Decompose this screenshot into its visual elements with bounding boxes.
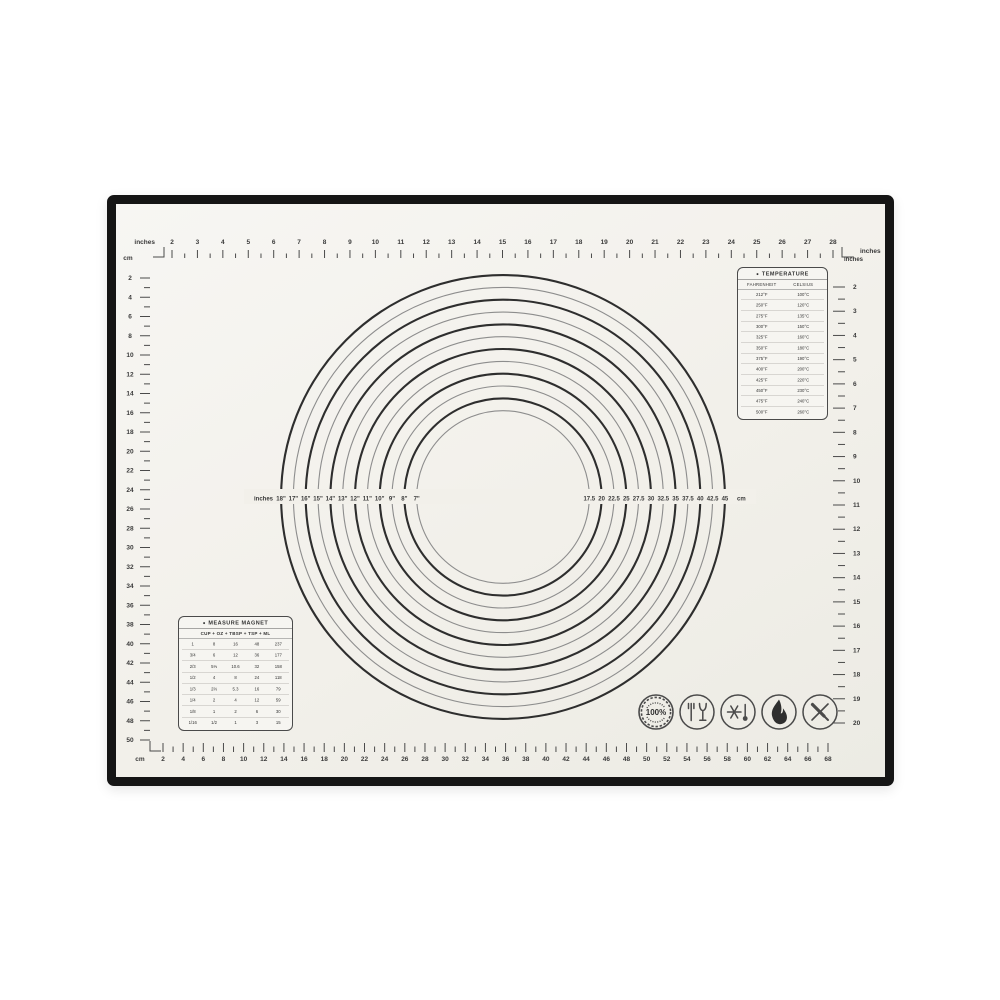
fahrenheit-column-label: FAHRENHEIT	[741, 282, 783, 287]
measure-cell: 15	[268, 720, 289, 725]
ruler-number: 11	[397, 239, 404, 246]
temperature-cell: 135°C	[783, 313, 825, 318]
measure-cell: 3	[246, 720, 267, 725]
ruler-number: 26	[126, 506, 134, 513]
right-ruler-unit: inches	[844, 257, 864, 263]
temperature-table-header: FAHRENHEIT CELSIUS	[738, 280, 827, 290]
measure-row: 1/4241259	[182, 694, 289, 705]
temperature-table-title: ● TEMPERATURE	[738, 268, 827, 280]
ruler-number: 22	[126, 468, 134, 475]
measure-cell: 24	[246, 675, 267, 680]
ruler-number: 19	[601, 239, 609, 246]
ruler-number: 16	[524, 239, 532, 246]
diameter-label: 15"	[313, 497, 323, 503]
ruler-number: 44	[583, 756, 591, 763]
ruler-number: 58	[724, 756, 732, 763]
ruler-number: 10	[240, 756, 248, 763]
cm-diameter-label: 37.5	[682, 497, 694, 503]
ruler-number: 20	[341, 756, 349, 763]
left-ruler-unit: cm	[123, 255, 133, 262]
glass-glyph	[700, 704, 707, 721]
ruler-number: 54	[683, 756, 691, 763]
ruler-number: 6	[853, 381, 857, 388]
measure-cell: 2	[203, 698, 224, 703]
badge-arc-text-bottom	[647, 717, 665, 722]
ruler-number: 6	[201, 756, 205, 763]
ruler-number: 48	[126, 718, 134, 725]
temperature-row: 375°F190°C	[741, 353, 824, 364]
ruler-number: 16	[300, 756, 308, 763]
temperature-cell: 100°C	[783, 292, 825, 297]
ruler-number: 2	[161, 756, 165, 763]
cm-diameter-label: 20	[598, 497, 605, 503]
measure-cell: 177	[268, 653, 289, 658]
ruler-number: 20	[126, 448, 134, 455]
temperature-row: 400°F200°C	[741, 364, 824, 375]
ruler-number: 46	[603, 756, 611, 763]
ruler-number: 12	[260, 756, 268, 763]
ruler-number: 38	[126, 622, 134, 629]
ruler-number: 19	[853, 696, 861, 703]
ruler-number: 17	[550, 239, 558, 246]
measure-row: 1/24824118	[182, 672, 289, 683]
diameter-label: 13"	[338, 497, 348, 503]
temperature-cell: 260°C	[783, 409, 825, 414]
ruler-number: 9	[853, 454, 857, 461]
measure-row: 181648237	[182, 639, 289, 650]
ruler-number: 7	[853, 405, 857, 412]
ruler-number: 13	[448, 239, 456, 246]
temperature-cell: 475°F	[741, 399, 783, 404]
ruler-number: 17	[853, 647, 861, 654]
ruler-number: 2	[170, 239, 174, 246]
temperature-resistant-icon	[718, 692, 758, 732]
corner-bracket-top-left	[153, 247, 164, 257]
circle-inch-unit-label: inches	[254, 497, 274, 503]
measure-cell: 36	[246, 653, 267, 658]
measure-cell: 32	[246, 664, 267, 669]
celsius-column-label: CELSIUS	[783, 282, 825, 287]
ruler-number: 4	[853, 332, 857, 339]
cm-diameter-label: 25	[623, 497, 630, 503]
ruler-number: 15	[499, 239, 507, 246]
diameter-label: 7"	[414, 497, 420, 503]
ruler-number: 2	[128, 275, 132, 282]
diameter-label: 12"	[350, 497, 360, 503]
temperature-cell: 220°C	[783, 377, 825, 382]
temperature-table-rows: 212°F100°C250°F120°C275°F135°C300°F150°C…	[738, 290, 827, 420]
ruler-number: 14	[473, 239, 481, 246]
measure-row: 1/32⅔5.31679	[182, 683, 289, 694]
ruler-number: 40	[542, 756, 550, 763]
ruler-number: 8	[222, 756, 226, 763]
measure-cell: 2/3	[182, 664, 203, 669]
corner-bracket-bottom-left	[150, 741, 161, 751]
ruler-number: 16	[853, 623, 861, 630]
platinum-silicone-100-badge: 100%	[636, 692, 676, 732]
cm-diameter-label: 45	[722, 497, 729, 503]
ruler-number: 5	[853, 357, 857, 364]
measure-cell: 3/4	[182, 653, 203, 658]
ruler-number: 20	[853, 720, 861, 727]
diameter-label: 16"	[301, 497, 311, 503]
ruler-number: 50	[126, 737, 134, 744]
ruler-number: 12	[126, 371, 134, 378]
ruler-number: 14	[280, 756, 288, 763]
ruler-number: 22	[361, 756, 369, 763]
measure-cell: 1/4	[182, 698, 203, 703]
ruler-number: 42	[126, 660, 134, 667]
temperature-row: 475°F240°C	[741, 396, 824, 407]
temperature-row: 212°F100°C	[741, 290, 824, 300]
measure-row: 2/35⅓10.632158	[182, 661, 289, 672]
measure-cell: 6	[246, 709, 267, 714]
temperature-cell: 120°C	[783, 303, 825, 308]
temperature-cell: 400°F	[741, 367, 783, 372]
temperature-row: 500°F260°C	[741, 406, 824, 417]
diameter-label: 9"	[389, 497, 395, 503]
ruler-number: 8	[323, 239, 327, 246]
ruler-number: 34	[126, 583, 134, 590]
ruler-number: 56	[703, 756, 711, 763]
temperature-table: ● TEMPERATURE FAHRENHEIT CELSIUS 212°F10…	[737, 267, 828, 420]
ruler-number: 28	[126, 525, 134, 532]
temperature-cell: 240°C	[783, 399, 825, 404]
bullet-icon: ●	[203, 621, 206, 626]
top-ruler-unit: inches	[134, 239, 155, 246]
measure-cell: 158	[268, 664, 289, 669]
corner-bracket-top-right	[842, 247, 853, 257]
ruler-number: 46	[126, 699, 134, 706]
measure-cell: 1/8	[182, 709, 203, 714]
measure-cell: 8	[203, 641, 224, 646]
bullet-icon: ●	[756, 272, 759, 277]
thermometer-bulb	[743, 716, 748, 721]
temperature-cell: 190°C	[783, 356, 825, 361]
ruler-number: 18	[853, 672, 861, 679]
temperature-cell: 212°F	[741, 292, 783, 297]
ruler-number: 7	[297, 239, 301, 246]
ruler-number: 26	[779, 239, 787, 246]
measure-cell: 1	[225, 720, 246, 725]
measure-cell: 59	[268, 698, 289, 703]
ruler-number: 68	[824, 756, 832, 763]
ruler-number: 48	[623, 756, 631, 763]
measure-cell: 1	[203, 709, 224, 714]
mat-markings: inches18"17"16"15"14"13"12"11"10"9"8"7"1…	[0, 0, 1000, 1000]
ruler-number: 27	[804, 239, 812, 246]
ruler-number: 30	[442, 756, 450, 763]
ruler-number: 14	[126, 391, 134, 398]
measure-row: 3/461236177	[182, 649, 289, 660]
measure-table-rows: 1816482373/4612361772/35⅓10.6321581/2482…	[179, 639, 292, 731]
diameter-label: 10"	[375, 497, 385, 503]
measure-cell: 16	[225, 641, 246, 646]
measure-cell: 2	[225, 709, 246, 714]
ruler-number: 52	[663, 756, 671, 763]
temperature-cell: 150°C	[783, 324, 825, 329]
ruler-number: 13	[853, 550, 861, 557]
bottom-ruler-unit: cm	[135, 756, 145, 763]
measure-cell: 12	[225, 653, 246, 658]
temperature-cell: 275°F	[741, 313, 783, 318]
measure-cell: 5⅓	[203, 664, 224, 669]
temperature-row: 425°F220°C	[741, 374, 824, 385]
knife-handle	[824, 716, 828, 720]
ruler-number: 3	[196, 239, 200, 246]
ruler-number: 42	[562, 756, 570, 763]
measure-cell: 48	[246, 641, 267, 646]
product-photo-baking-mat: inches18"17"16"15"14"13"12"11"10"9"8"7"1…	[0, 0, 1000, 1000]
ruler-number: 5	[246, 239, 250, 246]
ruler-number: 4	[128, 294, 132, 301]
100-percent-label: 100%	[646, 708, 666, 717]
cm-diameter-label: 27.5	[633, 497, 645, 503]
food-safe-icon	[677, 692, 717, 732]
diameter-label: 8"	[401, 497, 407, 503]
temperature-row: 450°F230°C	[741, 385, 824, 396]
ruler-number: 3	[853, 308, 857, 315]
temperature-row: 250°F120°C	[741, 300, 824, 311]
ruler-number: 16	[126, 410, 134, 417]
temperature-cell: 325°F	[741, 335, 783, 340]
cm-diameter-label: 17.5	[583, 497, 595, 503]
measure-cell: 6	[203, 653, 224, 658]
flame-glyph	[772, 700, 787, 725]
temperature-cell: 350°F	[741, 345, 783, 350]
temperature-cell: 160°C	[783, 335, 825, 340]
ruler-number: 8	[853, 429, 857, 436]
ruler-number: 40	[126, 641, 134, 648]
temperature-cell: 200°C	[783, 367, 825, 372]
measure-title-label: MEASURE MAGNET	[208, 620, 268, 626]
diameter-label: 18"	[276, 497, 286, 503]
ruler-number: 20	[626, 239, 634, 246]
measure-cell: 5.3	[225, 686, 246, 691]
ruler-number: 24	[728, 239, 736, 246]
ruler-number: 28	[829, 239, 837, 246]
temperature-cell: 250°F	[741, 303, 783, 308]
diameter-label: 14"	[326, 497, 336, 503]
ruler-number: 28	[421, 756, 429, 763]
ruler-number: 60	[744, 756, 752, 763]
ruler-number: 4	[221, 239, 225, 246]
measure-cell: 1/16	[182, 720, 203, 725]
temperature-title-label: TEMPERATURE	[762, 271, 809, 277]
ruler-number: 8	[128, 333, 132, 340]
cm-diameter-label: 22.5	[608, 497, 620, 503]
heat-resistant-icon	[759, 692, 799, 732]
measure-cell: 10.6	[225, 664, 246, 669]
measure-cell: 4	[203, 675, 224, 680]
temperature-row: 325°F160°C	[741, 332, 824, 343]
measure-row: 1/812630	[182, 706, 289, 717]
measure-cell: 118	[268, 675, 289, 680]
ruler-number: 12	[853, 526, 861, 533]
ruler-number: 26	[401, 756, 409, 763]
measure-cell: 79	[268, 686, 289, 691]
measure-cell: 1/2	[203, 720, 224, 725]
temperature-cell: 300°F	[741, 324, 783, 329]
ruler-number: 23	[702, 239, 710, 246]
cm-diameter-label: 32.5	[657, 497, 669, 503]
temperature-row: 300°F150°C	[741, 321, 824, 332]
ruler-number: 6	[128, 314, 132, 321]
diameter-label: 17"	[289, 497, 299, 503]
cm-diameter-label: 42.5	[707, 497, 719, 503]
ruler-number: 18	[575, 239, 583, 246]
ruler-number: 21	[651, 239, 659, 246]
measure-table-header: CUP + OZ + TBSP + TSP + ML	[179, 629, 292, 639]
measure-cell: 12	[246, 698, 267, 703]
ruler-number: 10	[853, 478, 861, 485]
temperature-cell: 425°F	[741, 377, 783, 382]
temperature-cell: 180°C	[783, 345, 825, 350]
temperature-cell: 375°F	[741, 356, 783, 361]
temperature-row: 275°F135°C	[741, 310, 824, 321]
ruler-number: 38	[522, 756, 530, 763]
measure-cell: 30	[268, 709, 289, 714]
circle-cm-unit-label: cm	[737, 497, 746, 503]
snowflake-glyph	[728, 706, 742, 718]
ruler-number: 62	[764, 756, 772, 763]
ruler-number: 10	[126, 352, 134, 359]
ruler-number: 18	[321, 756, 329, 763]
ruler-number: 10	[372, 239, 380, 246]
ruler-number: 25	[753, 239, 761, 246]
ruler-number: 9	[348, 239, 352, 246]
ruler-number: 12	[423, 239, 431, 246]
measure-cell: 8	[225, 675, 246, 680]
ruler-number: 24	[381, 756, 389, 763]
ruler-number: 18	[126, 429, 134, 436]
ruler-number: 50	[643, 756, 651, 763]
no-knife-icon	[800, 692, 840, 732]
ruler-number: 4	[181, 756, 185, 763]
measure-cell: 1/2	[182, 675, 203, 680]
measure-cell: 237	[268, 641, 289, 646]
measure-cell: 1	[182, 641, 203, 646]
ruler-number: 6	[272, 239, 276, 246]
measure-cell: 16	[246, 686, 267, 691]
fork-glyph	[689, 704, 694, 721]
measure-row: 1/161/21315	[182, 717, 289, 728]
ruler-number: 32	[462, 756, 470, 763]
ruler-number: 22	[677, 239, 685, 246]
ruler-number: 36	[126, 602, 134, 609]
ruler-number: 24	[126, 487, 134, 494]
top-ruler-unit: inches	[860, 248, 881, 255]
cm-diameter-label: 30	[648, 497, 655, 503]
ruler-number: 34	[482, 756, 490, 763]
ruler-number: 32	[126, 564, 134, 571]
temperature-cell: 230°C	[783, 388, 825, 393]
ruler-number: 2	[853, 284, 857, 291]
ruler-number: 11	[853, 502, 860, 509]
measure-cell: 4	[225, 698, 246, 703]
temperature-row: 350°F180°C	[741, 342, 824, 353]
ruler-number: 14	[853, 575, 861, 582]
ruler-number: 36	[502, 756, 510, 763]
ruler-number: 15	[853, 599, 861, 606]
measure-table: ● MEASURE MAGNET CUP + OZ + TBSP + TSP +…	[178, 616, 293, 731]
temperature-cell: 500°F	[741, 409, 783, 414]
diameter-label: 11"	[363, 497, 372, 503]
measure-table-title: ● MEASURE MAGNET	[179, 617, 292, 629]
cm-diameter-label: 40	[697, 497, 704, 503]
ruler-number: 64	[784, 756, 792, 763]
cm-diameter-label: 35	[672, 497, 679, 503]
ruler-number: 30	[126, 545, 134, 552]
ruler-number: 44	[126, 679, 134, 686]
ruler-number: 66	[804, 756, 812, 763]
measure-cell: 1/3	[182, 686, 203, 691]
temperature-cell: 450°F	[741, 388, 783, 393]
measure-cell: 2⅔	[203, 686, 224, 691]
